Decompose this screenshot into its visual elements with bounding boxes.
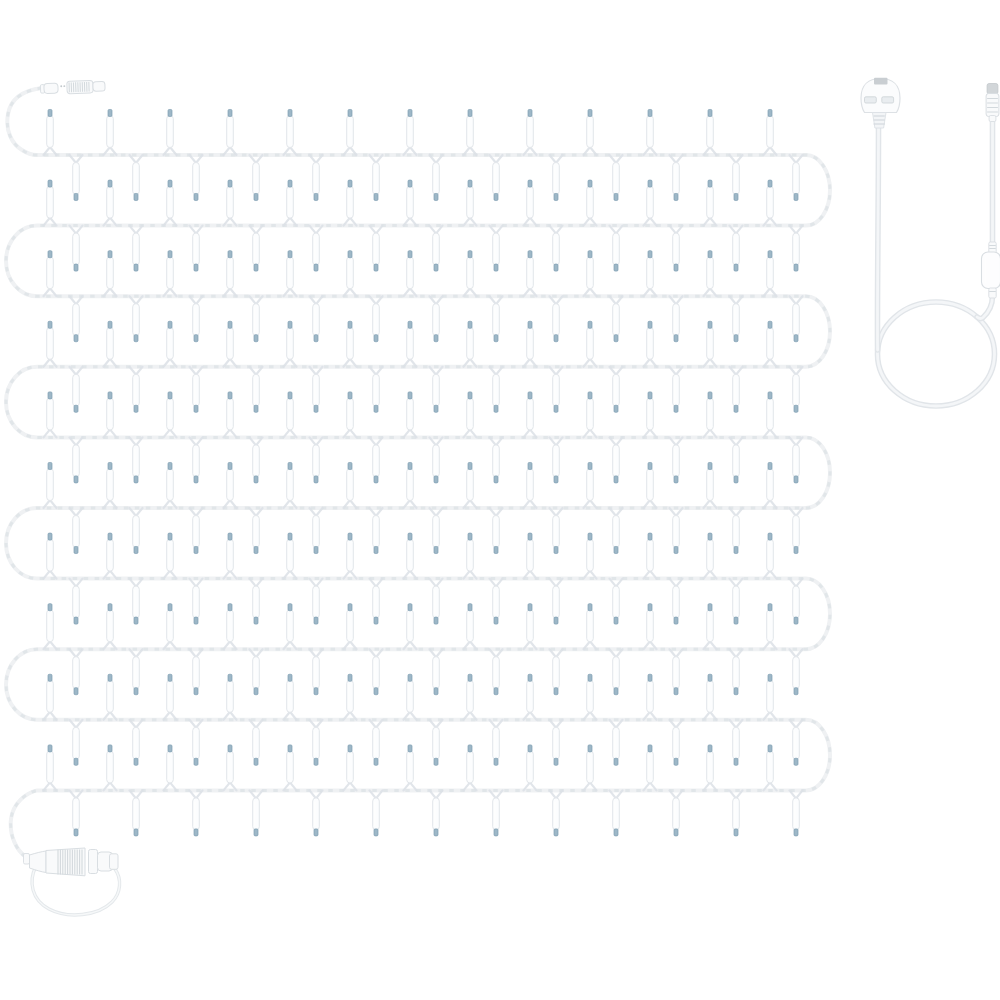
bulb-up — [104, 674, 117, 720]
bulb-tip — [434, 829, 438, 836]
bulb-body — [47, 610, 54, 642]
bulb-tip — [794, 264, 798, 271]
end-socket-taper — [30, 851, 47, 873]
bulb-tip — [468, 180, 472, 187]
bulb-body — [407, 680, 414, 712]
bulb-up — [284, 604, 297, 650]
bulb-body — [793, 727, 800, 759]
bulb-tip — [768, 604, 772, 611]
bulb-tip — [588, 463, 592, 470]
bulb-tip — [648, 321, 652, 328]
bulb-body — [587, 539, 594, 571]
bulb-tip — [648, 392, 652, 399]
bulb-down — [370, 790, 383, 836]
bulb-tip — [434, 688, 438, 695]
bulb-tip — [254, 194, 258, 201]
bulb-body — [673, 727, 680, 759]
bulb-tip — [194, 758, 198, 765]
bulb-tip — [614, 194, 618, 201]
bulb-tip — [48, 745, 52, 752]
bulb-tip — [134, 405, 138, 412]
bulb-tip — [408, 463, 412, 470]
bulb-body — [287, 116, 294, 148]
bulb-tip — [194, 829, 198, 836]
bulb-down — [490, 367, 503, 413]
bulb-down — [70, 155, 83, 201]
bulb-tip — [108, 321, 112, 328]
bulb-up — [584, 533, 597, 579]
bulb-tip — [768, 180, 772, 187]
bulb-body — [407, 469, 414, 501]
bulb-body — [673, 304, 680, 336]
bulb-body — [193, 233, 200, 265]
bulb-body — [647, 610, 654, 642]
bulb-body — [407, 116, 414, 148]
bulb-body — [587, 610, 594, 642]
bulb-tip — [74, 476, 78, 483]
bulb-body — [73, 516, 80, 548]
bulb-tip — [134, 617, 138, 624]
bulb-body — [107, 610, 114, 642]
bulb-body — [527, 257, 534, 289]
bulb-body — [347, 751, 354, 783]
bulb-down — [610, 790, 623, 836]
bulb-down — [70, 508, 83, 554]
bulb-body — [287, 751, 294, 783]
bulb-down — [430, 579, 443, 625]
bulb-up — [44, 463, 57, 509]
bulb-tip — [74, 405, 78, 412]
bulb-tip — [528, 321, 532, 328]
bulb-up — [584, 321, 597, 367]
bulb-down — [790, 579, 803, 625]
bulb-body — [467, 186, 474, 218]
bulb-tip — [194, 194, 198, 201]
bulb-body — [253, 163, 260, 195]
bulb-body — [553, 233, 560, 265]
bulb-body — [47, 186, 54, 218]
bulb-up — [104, 745, 117, 791]
bulb-body — [313, 163, 320, 195]
bulb-tip — [254, 688, 258, 695]
bulb-up — [764, 321, 777, 367]
bulb-tip — [348, 321, 352, 328]
bulb-down — [550, 720, 563, 766]
bulb-up — [704, 674, 717, 720]
bulb-body — [373, 586, 380, 618]
bulb-tip — [494, 617, 498, 624]
bulb-body — [287, 610, 294, 642]
bulb-body — [493, 586, 500, 618]
bulb-down — [550, 508, 563, 554]
bulb-tip — [674, 547, 678, 554]
bulb-tip — [314, 476, 318, 483]
bulb-down — [250, 508, 263, 554]
bulb-body — [433, 445, 440, 477]
bulb-body — [167, 116, 174, 148]
bulb-down — [130, 790, 143, 836]
bulb-tip — [228, 251, 232, 258]
bulb-body — [227, 680, 234, 712]
bulb-tip — [674, 264, 678, 271]
bulb-down — [730, 155, 743, 201]
bulb-tip — [528, 604, 532, 611]
bulb-down — [790, 720, 803, 766]
bulb-up — [104, 180, 117, 226]
bulb-body — [253, 657, 260, 689]
bulb-up — [404, 463, 417, 509]
bulb-body — [613, 445, 620, 477]
bulb-tip — [254, 547, 258, 554]
bulb-down — [790, 790, 803, 836]
bulb-body — [467, 398, 474, 430]
bulb-body — [107, 257, 114, 289]
bulb-tip — [468, 321, 472, 328]
bulb-tip — [374, 335, 378, 342]
bulb-down — [250, 649, 263, 695]
bulb-down — [130, 649, 143, 695]
bulb-body — [493, 657, 500, 689]
bulb-body — [553, 798, 560, 830]
bulb-tip — [314, 335, 318, 342]
bulb-tip — [794, 335, 798, 342]
bulb-tip — [494, 335, 498, 342]
bulb-tip — [314, 264, 318, 271]
bulb-body — [493, 727, 500, 759]
bulb-down — [310, 508, 323, 554]
bulb-up — [224, 604, 237, 650]
bulb-up — [104, 392, 117, 438]
bulb-tip — [194, 688, 198, 695]
bulb-down — [730, 508, 743, 554]
bulb-body — [373, 727, 380, 759]
bulb-body — [553, 374, 560, 406]
bulb-down — [730, 579, 743, 625]
bulb-up — [344, 674, 357, 720]
bulb-body — [587, 680, 594, 712]
bulb-down — [310, 155, 323, 201]
bulb-down — [70, 437, 83, 483]
bulb-body — [167, 257, 174, 289]
bulb-up — [704, 180, 717, 226]
bulb-up — [584, 745, 597, 791]
bulb-tip — [108, 392, 112, 399]
bulb-body — [73, 657, 80, 689]
bulb-tip — [708, 463, 712, 470]
bulb-up — [764, 392, 777, 438]
bulb-tip — [194, 264, 198, 271]
bulb-tip — [734, 476, 738, 483]
bulb-tip — [528, 251, 532, 258]
bulb-up — [344, 180, 357, 226]
bulb-up — [644, 674, 657, 720]
bulb-body — [167, 751, 174, 783]
bulb-down — [370, 155, 383, 201]
bulb-up — [224, 533, 237, 579]
bulb-tip — [708, 180, 712, 187]
bulb-tip — [528, 745, 532, 752]
bulb-down — [70, 296, 83, 342]
bulb-tip — [708, 604, 712, 611]
bulb-body — [767, 186, 774, 218]
bulb-body — [587, 257, 594, 289]
bulb-body — [167, 680, 174, 712]
bulb-tip — [674, 758, 678, 765]
bulb-up — [644, 321, 657, 367]
bulb-body — [407, 327, 414, 359]
bulb-body — [347, 186, 354, 218]
bulb-up — [404, 604, 417, 650]
bulb-tip — [648, 463, 652, 470]
bulb-up — [344, 321, 357, 367]
bulb-body — [133, 516, 140, 548]
bulb-tip — [708, 533, 712, 540]
bulb-down — [490, 720, 503, 766]
bulb-body — [733, 445, 740, 477]
bulb-tip — [168, 110, 172, 117]
controller-neck-top — [989, 242, 996, 253]
bulb-body — [613, 233, 620, 265]
bulb-body — [767, 398, 774, 430]
bulb-up — [404, 251, 417, 297]
bulb-body — [193, 374, 200, 406]
bulb-tip — [134, 194, 138, 201]
bulb-down — [190, 508, 203, 554]
bulb-body — [313, 304, 320, 336]
bulb-body — [373, 657, 380, 689]
bulb-tip — [768, 321, 772, 328]
bulb-up — [704, 251, 717, 297]
bulb-tip — [434, 335, 438, 342]
bulb-body — [73, 798, 80, 830]
bulb-down — [70, 720, 83, 766]
bulb-tip — [794, 758, 798, 765]
bulb-tip — [794, 405, 798, 412]
bulb-body — [133, 374, 140, 406]
bulb-body — [527, 680, 534, 712]
bulb-up — [464, 251, 477, 297]
bulb-tip — [614, 264, 618, 271]
bulb-body — [493, 233, 500, 265]
bulb-tip — [48, 251, 52, 258]
bulb-down — [670, 155, 683, 201]
bulb-up — [164, 110, 177, 156]
inline-controller — [982, 242, 1000, 298]
bulb-tip — [734, 335, 738, 342]
bulb-up — [764, 180, 777, 226]
bulb-down — [730, 649, 743, 695]
bulb-body — [647, 469, 654, 501]
bulb-tip — [674, 617, 678, 624]
bulb-up — [44, 180, 57, 226]
bulb-down — [790, 437, 803, 483]
bulb-down — [190, 155, 203, 201]
bulb-down — [130, 720, 143, 766]
bulb-tip — [734, 264, 738, 271]
bulb-up — [584, 604, 597, 650]
bulb-tip — [48, 392, 52, 399]
bulb-up — [404, 392, 417, 438]
bulb-body — [373, 516, 380, 548]
tip-neck — [989, 116, 996, 122]
bulb-body — [673, 233, 680, 265]
bulb-body — [133, 233, 140, 265]
bulb-body — [347, 539, 354, 571]
bulb-body — [107, 751, 114, 783]
bulb-up — [644, 392, 657, 438]
bulb-body — [373, 445, 380, 477]
bulb-body — [407, 398, 414, 430]
bulb-tip — [288, 180, 292, 187]
bulb-tip — [708, 745, 712, 752]
bulb-body — [733, 374, 740, 406]
bulb-tip — [48, 321, 52, 328]
bulb-tip — [708, 392, 712, 399]
bulb-tip — [228, 533, 232, 540]
bulb-tip — [168, 321, 172, 328]
bulb-up — [44, 110, 57, 156]
bulb-body — [553, 304, 560, 336]
bulb-up — [104, 604, 117, 650]
bulb-tip — [168, 604, 172, 611]
bulb-tip — [708, 110, 712, 117]
bulb-down — [370, 437, 383, 483]
bulb-tip — [554, 194, 558, 201]
bulb-down — [310, 367, 323, 413]
bulb-tip — [734, 405, 738, 412]
bulb-body — [47, 751, 54, 783]
bulb-down — [310, 720, 323, 766]
bulb-body — [613, 304, 620, 336]
bulb-up — [44, 392, 57, 438]
bulb-up — [584, 392, 597, 438]
bulb-tip — [48, 604, 52, 611]
bulb-tip — [554, 476, 558, 483]
bulb-tip — [794, 476, 798, 483]
bulb-body — [793, 798, 800, 830]
bulb-body — [373, 798, 380, 830]
bulb-tip — [614, 335, 618, 342]
bulb-up — [224, 180, 237, 226]
bulb-tip — [374, 617, 378, 624]
bulb-up — [164, 463, 177, 509]
bulb-up — [44, 533, 57, 579]
starter-connector-body — [40, 80, 105, 95]
bulb-down — [790, 226, 803, 272]
bulb-body — [167, 327, 174, 359]
bulb-down — [550, 155, 563, 201]
bulb-tip — [554, 264, 558, 271]
bulb-tip — [434, 405, 438, 412]
bulb-down — [490, 226, 503, 272]
bulb-up — [44, 674, 57, 720]
bulb-up — [404, 321, 417, 367]
bulb-down — [250, 155, 263, 201]
bulb-body — [767, 327, 774, 359]
bulb-tip — [134, 688, 138, 695]
bulb-up — [764, 110, 777, 156]
bulb-body — [287, 257, 294, 289]
bulb-down — [250, 437, 263, 483]
bulb-tip — [468, 533, 472, 540]
bulb-body — [767, 539, 774, 571]
bulb-body — [647, 539, 654, 571]
bulb-up — [704, 745, 717, 791]
bulb-tip — [768, 533, 772, 540]
bulb-tip — [168, 180, 172, 187]
bulb-body — [793, 304, 800, 336]
bulb-tip — [74, 264, 78, 271]
bulb-up — [164, 392, 177, 438]
bulb-body — [73, 163, 80, 195]
bulb-up — [284, 674, 297, 720]
bulb-tip — [134, 335, 138, 342]
bulb-up — [704, 533, 717, 579]
bulb-tip — [588, 533, 592, 540]
bulb-body — [227, 610, 234, 642]
bulb-body — [733, 304, 740, 336]
bulb-down — [610, 579, 623, 625]
bulb-up — [344, 110, 357, 156]
bulb-body — [467, 116, 474, 148]
bulb-body — [253, 445, 260, 477]
bulb-tip — [288, 745, 292, 752]
bulb-body — [253, 727, 260, 759]
bulb-body — [613, 586, 620, 618]
bulb-tip — [194, 476, 198, 483]
bulb-body — [167, 469, 174, 501]
bulb-up — [344, 392, 357, 438]
bulb-body — [313, 374, 320, 406]
bulb-tip — [614, 688, 618, 695]
bulb-body — [133, 586, 140, 618]
uk-plug-slot-right — [882, 97, 894, 103]
bulb-tip — [674, 829, 678, 836]
starter-socket — [44, 83, 58, 93]
bulb-up — [524, 745, 537, 791]
bulb-body — [527, 539, 534, 571]
bulb-tip — [588, 251, 592, 258]
bulb-body — [793, 163, 800, 195]
bulb-up — [404, 674, 417, 720]
bulb-down — [730, 720, 743, 766]
bulb-tip — [348, 463, 352, 470]
bulb-body — [767, 680, 774, 712]
bulb-body — [467, 539, 474, 571]
bulb-down — [250, 226, 263, 272]
bulb-tip — [468, 463, 472, 470]
bulb-tip — [794, 194, 798, 201]
bulb-down — [730, 437, 743, 483]
bulb-up — [704, 604, 717, 650]
bulb-tip — [794, 688, 798, 695]
bulb-down — [490, 296, 503, 342]
bulb-down — [70, 790, 83, 836]
bulb-tip — [794, 829, 798, 836]
bulb-up — [344, 251, 357, 297]
bulb-tip — [348, 674, 352, 681]
bulb-tip — [254, 617, 258, 624]
bulb-body — [313, 516, 320, 548]
bulb-body — [527, 610, 534, 642]
bulb-up — [44, 604, 57, 650]
bulb-up — [704, 392, 717, 438]
bulb-body — [227, 116, 234, 148]
bulb-body — [733, 798, 740, 830]
bulb-down — [70, 367, 83, 413]
bulb-tip — [228, 674, 232, 681]
bulb-tip — [648, 533, 652, 540]
